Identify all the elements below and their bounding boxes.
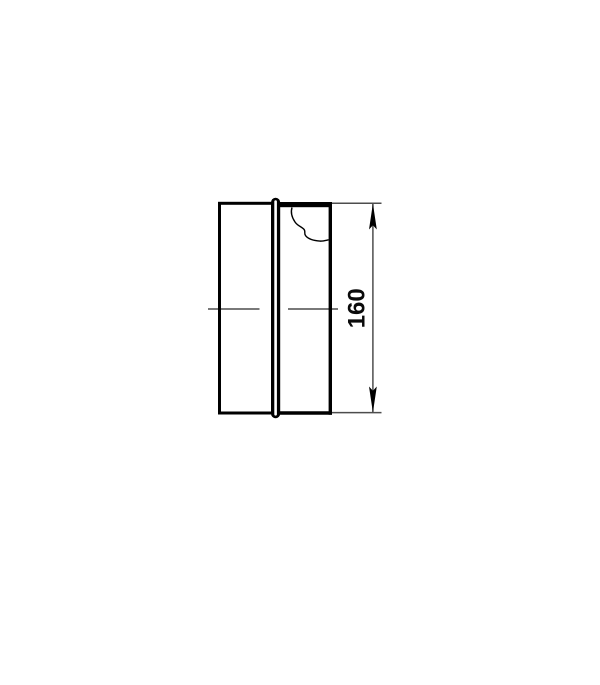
svg-text:160: 160 bbox=[344, 288, 371, 328]
